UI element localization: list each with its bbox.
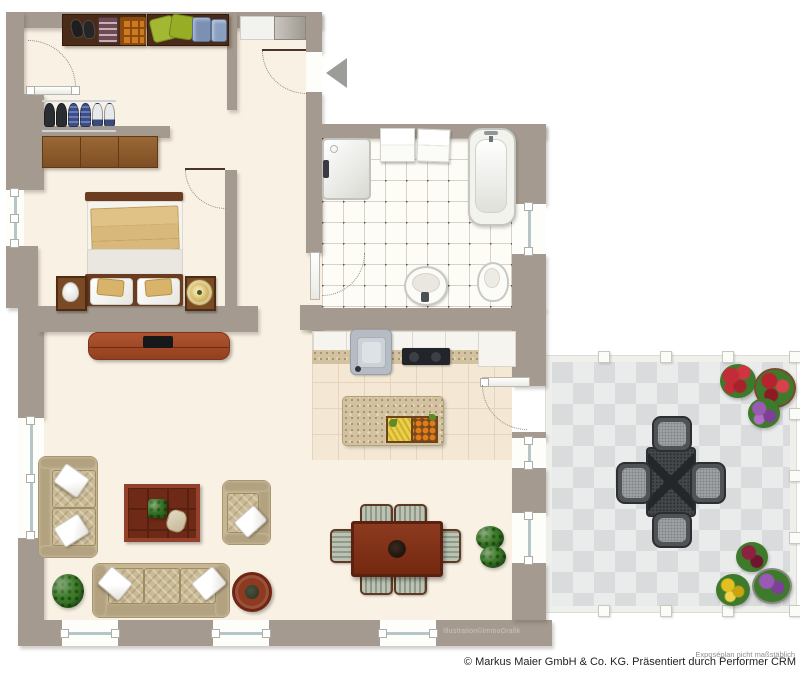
- toilet-bowl: [484, 268, 500, 288]
- window-glass: [64, 632, 116, 635]
- sink-basin: [412, 273, 440, 293]
- window: [512, 438, 546, 468]
- flower-pot: [716, 574, 750, 606]
- terrace-table: [646, 447, 696, 517]
- bed-cushion-gold: [144, 278, 172, 297]
- door-handle: [71, 86, 80, 95]
- tv-lowboard: [88, 332, 230, 360]
- dining-table: [351, 521, 443, 577]
- bathroom-door-leaf: [310, 252, 320, 300]
- bathtub-faucet-knob: [489, 136, 493, 142]
- kitchen-cabinet-tall: [478, 331, 516, 367]
- three-seat-sofa: [92, 563, 230, 618]
- bathtub: [468, 128, 516, 226]
- entry-cabinet: [240, 16, 276, 40]
- window-handle: [524, 436, 533, 445]
- sideboard: [42, 136, 158, 168]
- wall: [6, 12, 24, 98]
- shoe: [104, 103, 115, 127]
- bathtub-basin: [475, 139, 507, 213]
- window-handle: [10, 239, 19, 248]
- terrace-post: [789, 532, 800, 544]
- coffee-table: [124, 484, 200, 542]
- terrace-post: [598, 605, 610, 617]
- kitchen-faucet: [355, 366, 361, 372]
- loveseat-back: [39, 457, 51, 557]
- window-glass: [215, 632, 267, 635]
- table-plant: [148, 499, 167, 518]
- shower-fixture: [323, 160, 329, 178]
- chair-seat: [696, 468, 720, 498]
- watering-can: [164, 508, 188, 534]
- storage-box: [120, 17, 146, 45]
- flower-pot: [752, 568, 792, 604]
- terrace-post: [789, 605, 800, 617]
- shoe: [68, 103, 79, 127]
- wall: [512, 468, 546, 513]
- terrace-post: [598, 351, 610, 363]
- armchair: [222, 480, 271, 545]
- window-glass: [528, 206, 531, 252]
- shoe: [80, 103, 91, 127]
- illustration-watermark: Illustration©immoGrafik: [443, 628, 520, 635]
- copyright-text: © Markus Maier GmbH & Co. KG. Präsentier…: [464, 656, 796, 668]
- window-handle: [524, 511, 533, 520]
- window: [380, 620, 436, 646]
- armchair-arm: [223, 481, 270, 492]
- burner: [409, 352, 419, 362]
- bath-towel: [380, 128, 415, 162]
- shower-drain: [330, 145, 338, 153]
- window-handle: [524, 461, 533, 470]
- chair-seat: [658, 518, 686, 542]
- shoe-rack: [42, 100, 116, 132]
- tv: [143, 336, 173, 348]
- loveseat-arm: [39, 545, 97, 557]
- towel-blue: [192, 17, 211, 42]
- side-table-round: [232, 572, 272, 612]
- wall: [512, 563, 546, 620]
- window: [512, 513, 546, 563]
- wall: [512, 124, 546, 204]
- window-handle: [524, 556, 533, 565]
- window-handle: [111, 629, 120, 638]
- shoe: [92, 103, 103, 127]
- door-handle: [26, 86, 35, 95]
- bed-blanket: [90, 205, 179, 252]
- window: [213, 620, 269, 646]
- window-handle: [378, 629, 387, 638]
- terrace-post: [789, 408, 800, 420]
- window: [6, 190, 24, 246]
- wall: [306, 92, 322, 126]
- orange-leaf: [429, 414, 436, 421]
- wall: [306, 12, 322, 52]
- terrace-chair: [690, 462, 726, 504]
- seat-cushion: [144, 568, 180, 604]
- terrace-post: [660, 351, 672, 363]
- sink-faucet: [421, 292, 429, 302]
- wall: [6, 94, 44, 190]
- terrace: [546, 356, 796, 612]
- wall: [512, 254, 546, 310]
- terrace-post: [660, 605, 672, 617]
- cooktop: [402, 348, 450, 365]
- folded-blanket: [98, 17, 118, 43]
- burner: [431, 352, 441, 362]
- bath-towel: [416, 128, 450, 162]
- window-handle: [26, 416, 35, 425]
- window-glass: [528, 515, 531, 561]
- window-handle: [10, 214, 19, 223]
- bed-cushion-gold: [96, 278, 124, 297]
- flower-pot: [736, 542, 768, 572]
- floorplan-canvas: Illustration©immoGrafik Exposéplan nicht…: [0, 0, 800, 675]
- entrance-arrow-icon: [326, 58, 347, 88]
- kitchen-sink: [350, 329, 392, 375]
- terrace-post: [722, 605, 734, 617]
- chair-seat: [658, 422, 686, 446]
- flower-pot: [720, 364, 756, 398]
- sink: [404, 266, 448, 306]
- wall: [6, 246, 38, 308]
- shoe: [44, 103, 55, 127]
- banana-leaf: [389, 419, 397, 427]
- window-handle: [26, 474, 35, 483]
- window: [512, 204, 546, 254]
- wall: [306, 308, 546, 330]
- terrace-post: [789, 470, 800, 482]
- window-handle: [211, 629, 220, 638]
- terrace-post: [722, 351, 734, 363]
- lamp: [62, 282, 79, 302]
- sofa-back: [93, 603, 229, 617]
- disc-center: [197, 290, 202, 295]
- terrace-chair: [616, 462, 652, 504]
- window-glass: [382, 632, 434, 635]
- sideboard-divider: [80, 137, 81, 167]
- shoe: [56, 103, 67, 127]
- bathtub-faucet: [484, 131, 498, 135]
- window-handle: [262, 629, 271, 638]
- wall: [225, 170, 237, 306]
- wall: [306, 138, 322, 253]
- sink-bowl-inner: [362, 342, 381, 363]
- decor-disc-gold: [186, 279, 213, 306]
- table-bowl: [388, 540, 406, 558]
- fruit-crate-oranges: [411, 416, 438, 443]
- terrace-chair: [652, 416, 692, 452]
- floor-plant: [480, 546, 506, 568]
- flower-pot: [748, 398, 780, 428]
- terrace-post: [789, 351, 800, 363]
- window-handle: [524, 202, 533, 211]
- fruit-crate-bananas: [386, 416, 413, 443]
- door-leaf: [28, 86, 78, 95]
- shower: [322, 138, 371, 200]
- window-handle: [429, 629, 438, 638]
- floor-plant: [52, 574, 84, 608]
- window-handle: [26, 531, 35, 540]
- sink-bowl: [357, 337, 386, 368]
- window: [62, 620, 118, 646]
- side-table-decor: [245, 585, 259, 599]
- window-handle: [524, 247, 533, 256]
- entry-door-opening: [306, 52, 322, 92]
- entry-cabinet: [274, 16, 306, 40]
- window-handle: [60, 629, 69, 638]
- towel-blue: [211, 19, 227, 42]
- toilet: [477, 262, 509, 302]
- window-handle: [10, 188, 19, 197]
- bed-footboard: [85, 192, 183, 201]
- sideboard-divider: [118, 137, 119, 167]
- loveseat: [38, 456, 98, 558]
- chair-seat: [622, 468, 646, 498]
- terrace-chair: [652, 512, 692, 548]
